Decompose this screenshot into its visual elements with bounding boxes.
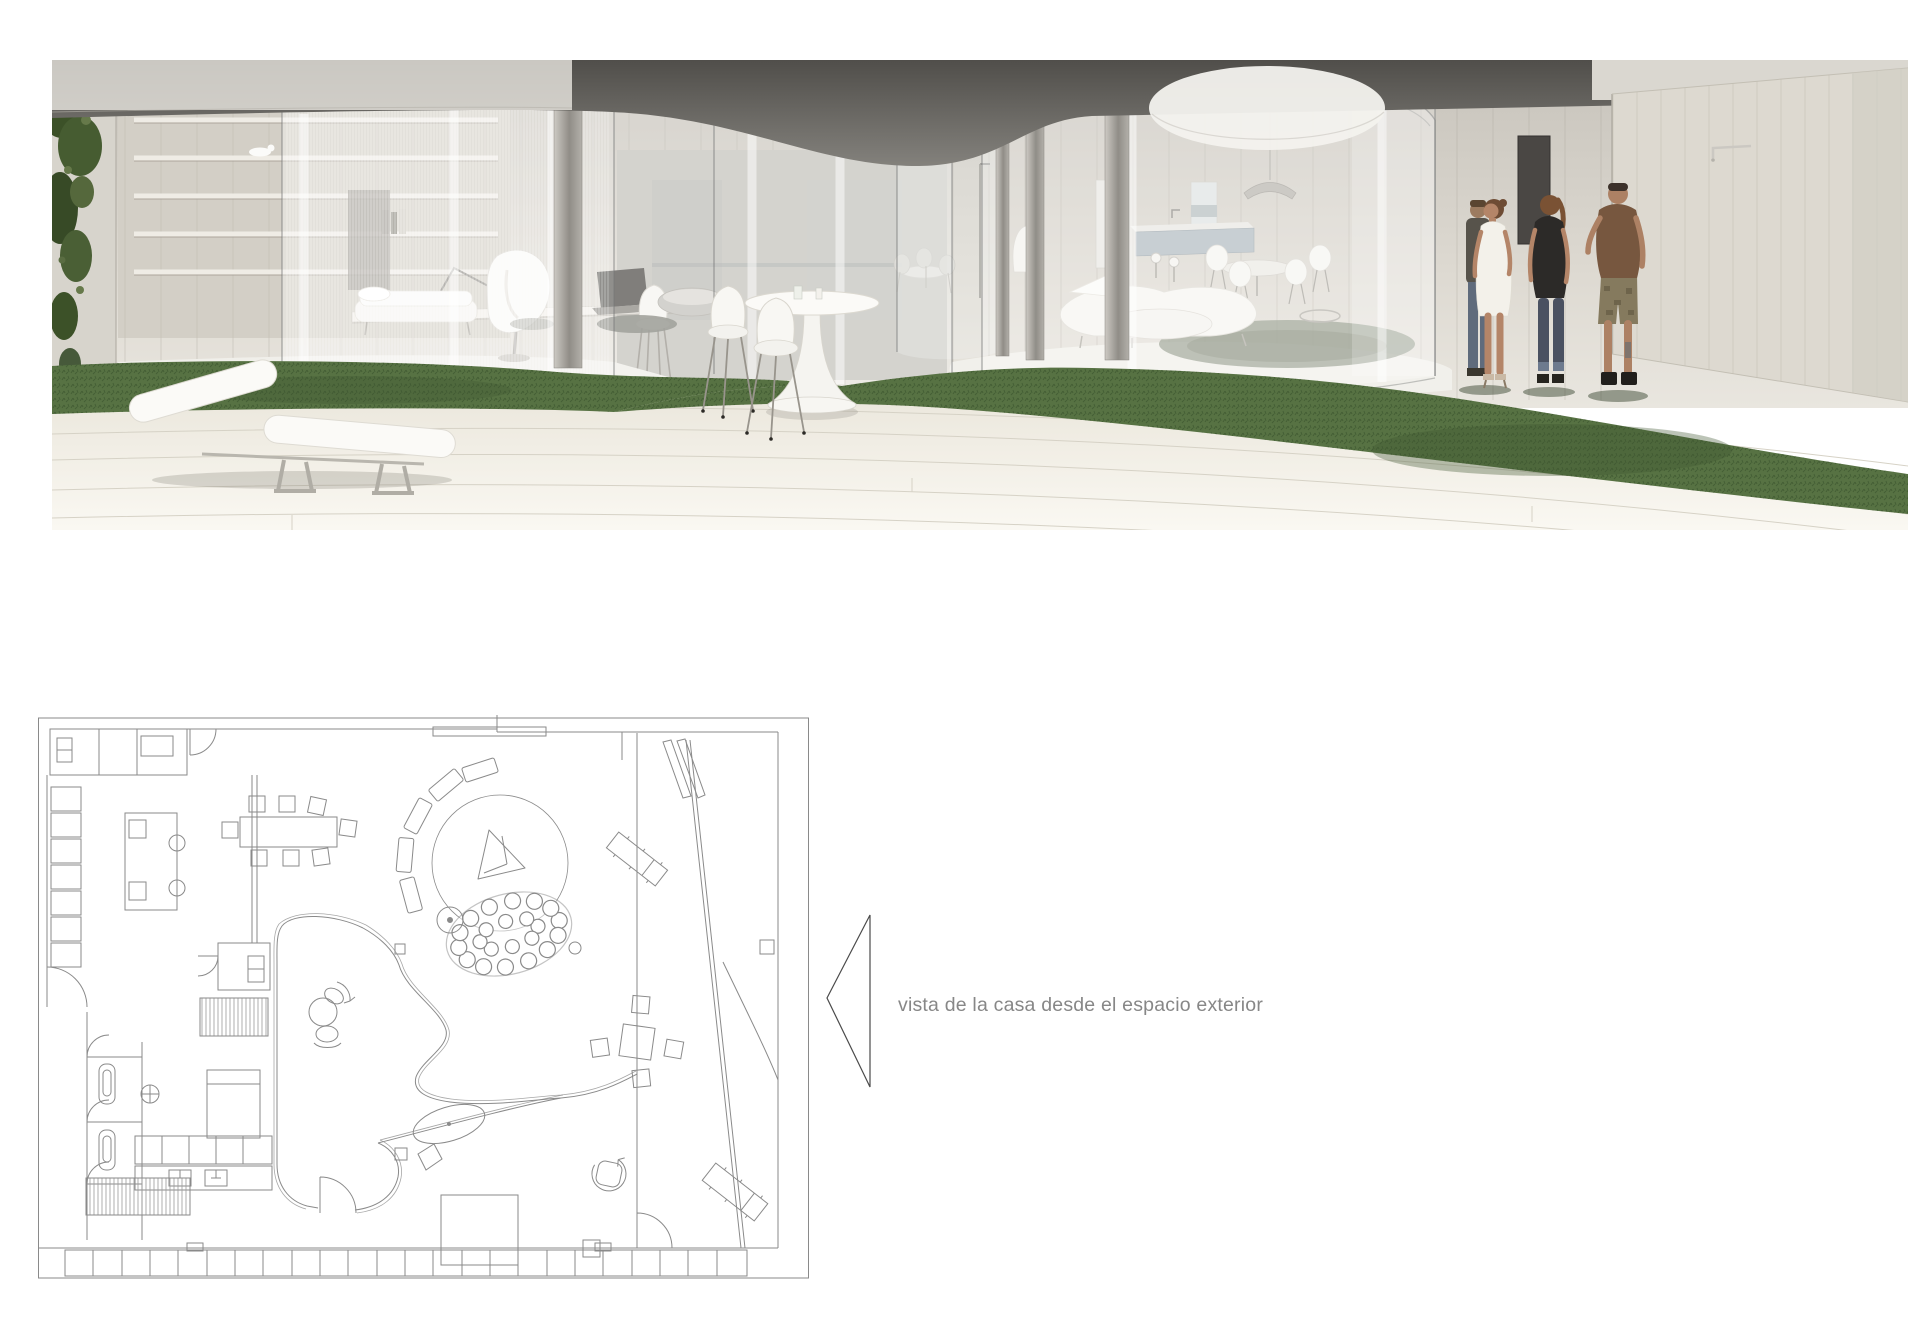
view-direction-arrow-icon bbox=[827, 915, 870, 1087]
view-direction-marker bbox=[818, 906, 878, 1096]
view-caption: vista de la casa desde el espacio exteri… bbox=[898, 994, 1263, 1017]
plan-stools bbox=[309, 982, 355, 1048]
plan-hatch-mat-a bbox=[86, 1178, 190, 1215]
plan-swivel-chair bbox=[589, 1152, 630, 1194]
plan-entry-rooms bbox=[50, 729, 187, 775]
plan-bathtub bbox=[409, 1097, 490, 1151]
left-triangle-icon bbox=[818, 906, 878, 1096]
exterior-view-render bbox=[52, 60, 1908, 530]
floor-plan bbox=[37, 712, 810, 1283]
plan-hatch-mat-b bbox=[200, 998, 268, 1036]
plan-corridor-wall bbox=[252, 775, 257, 943]
plan-glass-walls bbox=[637, 733, 778, 1248]
render-image bbox=[52, 60, 1908, 530]
plan-closets-left bbox=[51, 787, 81, 967]
skylight-dome bbox=[1149, 66, 1385, 150]
plan-platform bbox=[441, 1195, 518, 1265]
plan-kitchen-island bbox=[125, 813, 185, 910]
presentation-page: vista de la casa desde el espacio exteri… bbox=[0, 0, 1920, 1333]
plan-dining-table bbox=[222, 796, 357, 866]
floor-plan-drawing bbox=[37, 712, 810, 1283]
plan-bedroom bbox=[198, 943, 270, 1138]
